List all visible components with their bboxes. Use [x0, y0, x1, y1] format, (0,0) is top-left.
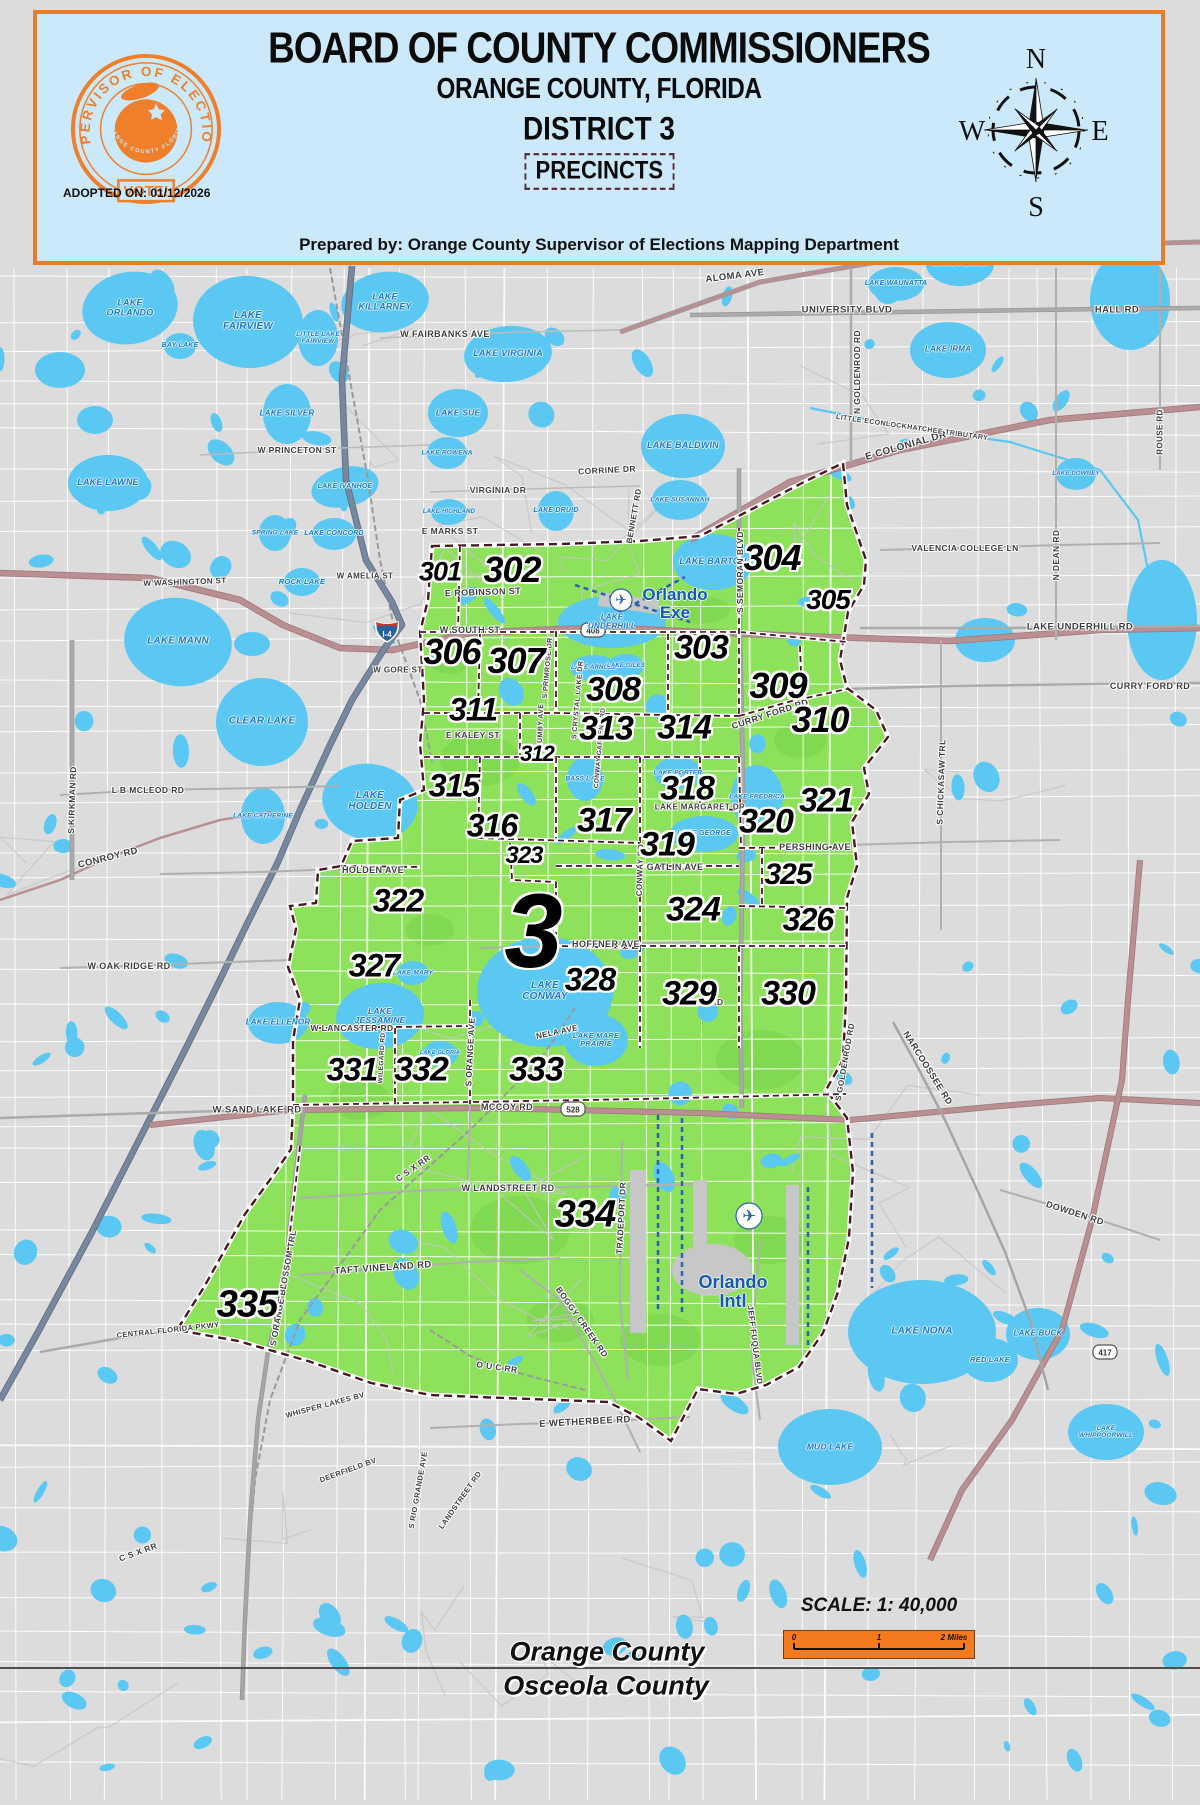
adopted-date: ADOPTED ON: 01/12/2026: [63, 186, 210, 200]
svg-text:528: 528: [566, 1106, 580, 1115]
svg-text:408: 408: [586, 627, 600, 636]
svg-text:I-4: I-4: [382, 630, 392, 639]
compass-n: N: [1026, 44, 1046, 75]
precincts-badge: PRECINCTS: [524, 153, 674, 190]
compass-e: E: [1091, 116, 1108, 147]
svg-text:✈: ✈: [742, 1207, 756, 1225]
compass-w: W: [959, 116, 986, 147]
map-title-panel: SUPERVISOR OF ELECTIONS ORANGE COUNTY FL…: [33, 10, 1165, 265]
county-label-orange: Orange County: [509, 1637, 704, 1668]
scale-box: 0 1 2 Miles: [783, 1630, 975, 1659]
svg-text:417: 417: [1098, 1349, 1112, 1358]
map-base-svg: I-4408528417✈✈: [0, 0, 1200, 1800]
compass-s: S: [1028, 192, 1044, 223]
route-shield-408: 408: [581, 623, 605, 637]
route-shield-417: 417: [1093, 1345, 1117, 1359]
county-label-osceola: Osceola County: [503, 1671, 709, 1702]
airplane-icon: ✈: [610, 589, 632, 611]
airplane-icon: ✈: [736, 1203, 762, 1229]
compass-star: [984, 78, 1088, 182]
compass-rose-icon: N E S W: [951, 32, 1121, 242]
scale-tick-2: 2 Miles: [940, 1633, 968, 1642]
route-shield-528: 528: [561, 1102, 585, 1116]
scale-text: SCALE: 1: 40,000: [801, 1595, 957, 1617]
scale-tick-0: 0: [792, 1633, 797, 1642]
scale-tick-1: 1: [877, 1633, 882, 1642]
svg-text:✈: ✈: [615, 593, 627, 608]
precinct-map-canvas: I-4408528417✈✈: [0, 0, 1200, 1800]
